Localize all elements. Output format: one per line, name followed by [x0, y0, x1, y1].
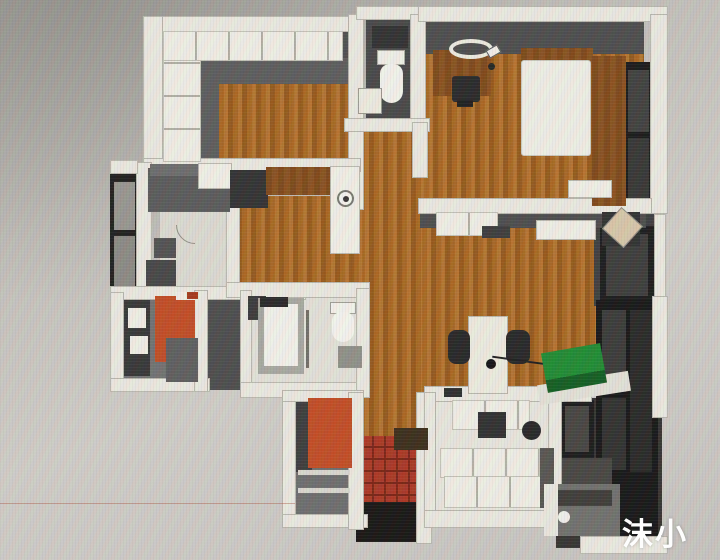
bed-mattress: [521, 60, 591, 156]
living-room-wood-rug: [219, 84, 351, 160]
floor-plan-3d-view: [0, 0, 720, 560]
bedroom-wall-top: [418, 6, 668, 22]
balcony-pane-c: [630, 310, 652, 472]
orange-bedroom-picture-2: [130, 336, 148, 354]
living-room-sofa-top: [163, 31, 343, 61]
small-room-step-2: [298, 488, 350, 493]
kitchen-counter-wood: [266, 167, 332, 195]
shower-head-bar: [260, 297, 288, 307]
porch-white-edge: [544, 484, 558, 536]
dining-chair-left: [448, 330, 470, 364]
porch-white-ball: [558, 511, 570, 523]
living-room-sofa-left: [163, 60, 201, 162]
photo-artifact-line: [0, 503, 295, 504]
left-balcony-outer-wall: [110, 160, 138, 174]
left-balcony-pane-2: [114, 236, 135, 288]
screen-photo-canvas: 沫小白: [0, 0, 720, 560]
entry-bench: [536, 220, 596, 240]
bathroom-left-wall-shade: [206, 296, 242, 390]
bathroom-toilet-bowl: [332, 312, 354, 342]
watermark-text: 沫小白: [622, 509, 720, 560]
orange-bedroom-desk: [166, 338, 198, 382]
white-room-dark-drawer: [478, 412, 506, 438]
top-bathroom-toilet-tank: [377, 50, 405, 65]
entry-cabinet-gap: [482, 226, 510, 238]
small-room-orange-bed: [308, 398, 352, 468]
top-bathroom-wall-right: [410, 14, 426, 124]
white-room-top-notch: [444, 388, 462, 397]
top-bathroom-cabinet: [372, 26, 408, 48]
living-room-sofa-shade-top: [199, 58, 351, 86]
kitchen-fridge: [198, 163, 232, 189]
kitchen-sink-counter: [330, 166, 360, 254]
top-bathroom-washbox: [358, 88, 382, 114]
living-room-wall-top: [143, 16, 359, 32]
bedroom-window-pane-2: [628, 138, 649, 200]
bathroom-wall-right: [356, 288, 370, 398]
couch-backrest: [440, 448, 540, 478]
left-balcony-pane-1: [114, 182, 135, 230]
bedroom-window-bench: [568, 180, 612, 198]
living-room-wall-left: [143, 16, 163, 164]
kitchen-box-1: [154, 238, 176, 258]
kitchen-cooktop: [230, 170, 268, 208]
balcony-window-1-pane: [565, 406, 589, 452]
living-room-sofa-shade-left: [199, 84, 219, 160]
right-cap-wall-mid: [654, 214, 666, 300]
orange-bedroom-picture-1: [128, 308, 146, 328]
balcony-right-cap-wall: [652, 296, 668, 418]
top-bathroom-toilet-bowl: [380, 64, 403, 103]
white-room-dark-circle: [522, 421, 541, 440]
desk-lamp-base: [486, 359, 496, 369]
shower-tray-inner: [264, 304, 298, 366]
white-room-wall-left: [424, 392, 436, 528]
bedroom-desk-chair: [452, 76, 480, 102]
small-room-wall-left: [282, 392, 296, 528]
bedroom-window-pane-1: [628, 70, 649, 132]
orange-bedroom-wall-left: [110, 292, 124, 392]
bedroom-small-dot: [488, 63, 495, 70]
red-tile-dark-counter: [394, 428, 428, 450]
bedroom-wall-right: [650, 14, 668, 214]
bedroom-door-wall: [412, 122, 428, 178]
kitchen-box-2: [146, 260, 176, 286]
kitchen-sink-drain: [343, 196, 349, 202]
towel-rail: [306, 310, 309, 368]
bedroom-chair-leg: [457, 100, 473, 107]
small-room-step-1: [298, 470, 350, 475]
dining-table: [468, 316, 508, 394]
porch-dark-step: [558, 490, 612, 506]
orange-bed-red-cushion: [187, 292, 198, 299]
couch-seat: [444, 476, 542, 508]
bathroom-vanity: [338, 346, 362, 368]
